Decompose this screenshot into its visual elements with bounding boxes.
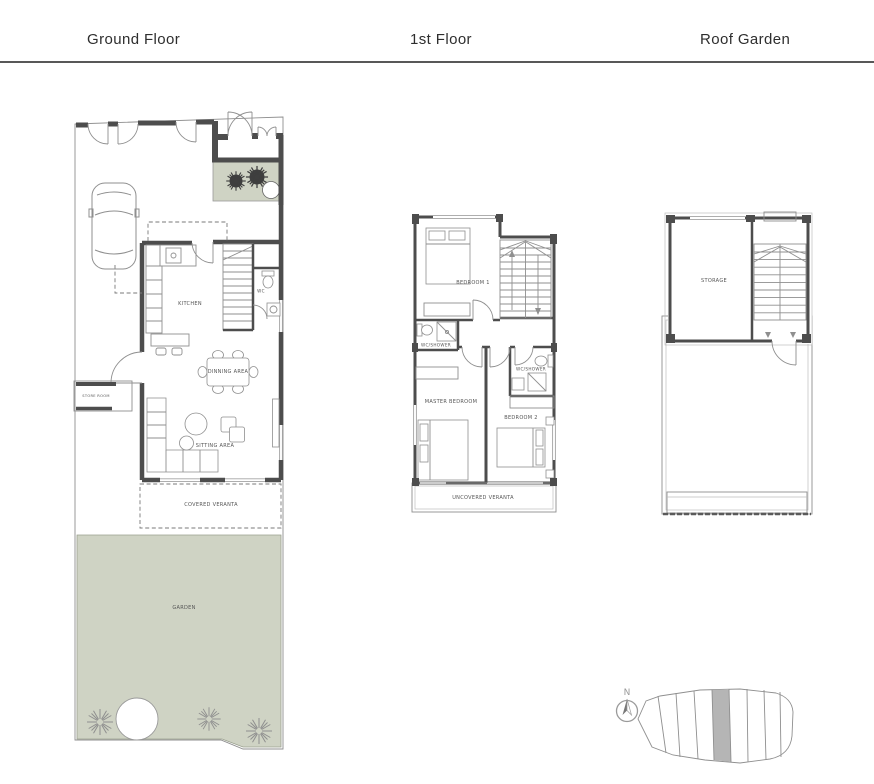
garden-area <box>77 535 281 747</box>
highlighted-unit <box>712 689 731 762</box>
floor-plans-drawing <box>0 0 874 784</box>
ground-floor-plan <box>74 112 283 749</box>
car <box>89 183 139 269</box>
site-key-plan <box>638 689 793 763</box>
tree-icon <box>116 698 158 740</box>
north-compass-icon <box>617 699 638 722</box>
roof-garden-plan <box>662 212 812 514</box>
first-floor-plan <box>412 214 557 512</box>
floor-plan-sheet: Ground Floor 1st Floor Roof Garden <box>0 0 874 784</box>
